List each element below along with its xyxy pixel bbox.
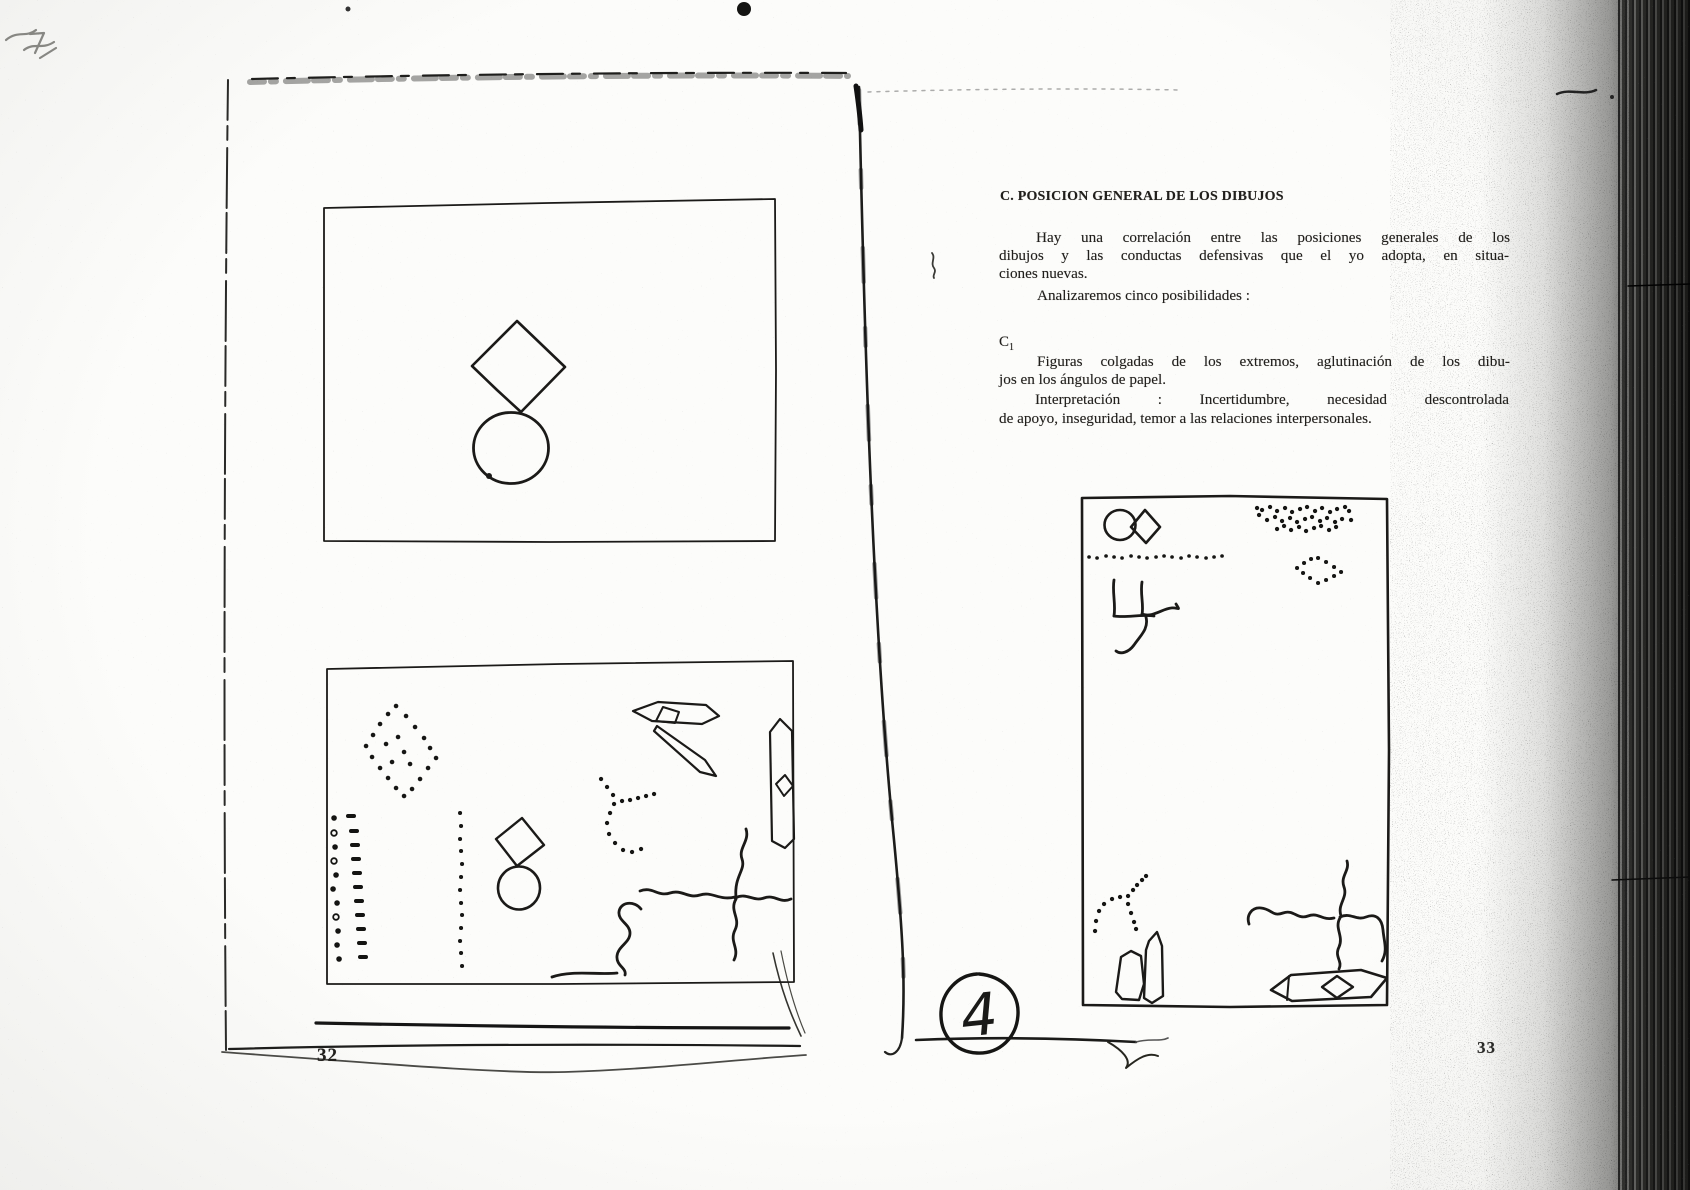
section-line-1: Figuras colgadas de los extremos, agluti… <box>1037 353 1510 371</box>
left-page-edges <box>222 73 848 1072</box>
diamond-circle-figure-small <box>496 818 544 910</box>
small-diamond-dot-cluster <box>1297 558 1341 583</box>
dot-cluster-rhombus <box>366 706 436 796</box>
page-number-left: 32 <box>317 1045 338 1067</box>
dense-dot-cluster <box>1257 507 1351 531</box>
intro-line-4: Analizaremos cinco posibilidades : <box>1037 287 1250 305</box>
dotted-horizontal-line <box>1089 556 1222 558</box>
vertical-crystal <box>770 719 794 848</box>
section-line-3: Interpretación : Incertidumbre, necesida… <box>1035 391 1509 409</box>
crystal-cluster <box>633 702 719 776</box>
intro-line-2: dibujos y las conductas defensivas que e… <box>999 247 1509 265</box>
circle-diamond-figure <box>1105 510 1161 543</box>
figure-frame-1 <box>324 199 776 542</box>
top-smudges <box>346 2 1615 99</box>
dotted-vertical-line <box>460 813 462 966</box>
section-line-2: jos en los ángulos de papel. <box>999 371 1166 389</box>
horizontal-crystal <box>1271 970 1387 1001</box>
intro-line-3: ciones nuevas. <box>999 265 1088 283</box>
dotted-y-figure <box>601 779 654 852</box>
handwritten-4-glyph: 4 <box>957 979 1001 1050</box>
diamond-circle-figure-large <box>472 321 565 484</box>
squiggle-star-left <box>640 829 791 960</box>
corner-scribble <box>6 30 56 58</box>
page-number-right: 33 <box>1477 1038 1496 1058</box>
figure-frame-3 <box>1082 496 1389 1007</box>
dotted-arc-fork <box>1095 876 1146 931</box>
curved-cross-figure <box>1113 580 1178 653</box>
section-heading: C. POSICION GENERAL DE LOS DIBUJOS <box>1000 189 1284 205</box>
standing-crystals <box>1116 932 1163 1003</box>
scan-artwork: 4 <box>0 0 1690 1190</box>
squiggle-star-right <box>1248 861 1385 969</box>
intro-line-1: Hay una correlación entre las posiciones… <box>1036 229 1510 247</box>
section-line-4: de apoyo, inseguridad, temor a las relac… <box>999 410 1372 428</box>
book-spine <box>856 86 935 1054</box>
figure-frame-2 <box>327 661 794 984</box>
book-scan-spread: 4 C. POSICION GENERAL DE LOS DIBUJOS Hay… <box>0 0 1690 1190</box>
s-curve-figure <box>552 903 641 977</box>
subsection-label: C1 <box>999 334 1014 353</box>
dot-columns-left-edge <box>331 816 366 959</box>
